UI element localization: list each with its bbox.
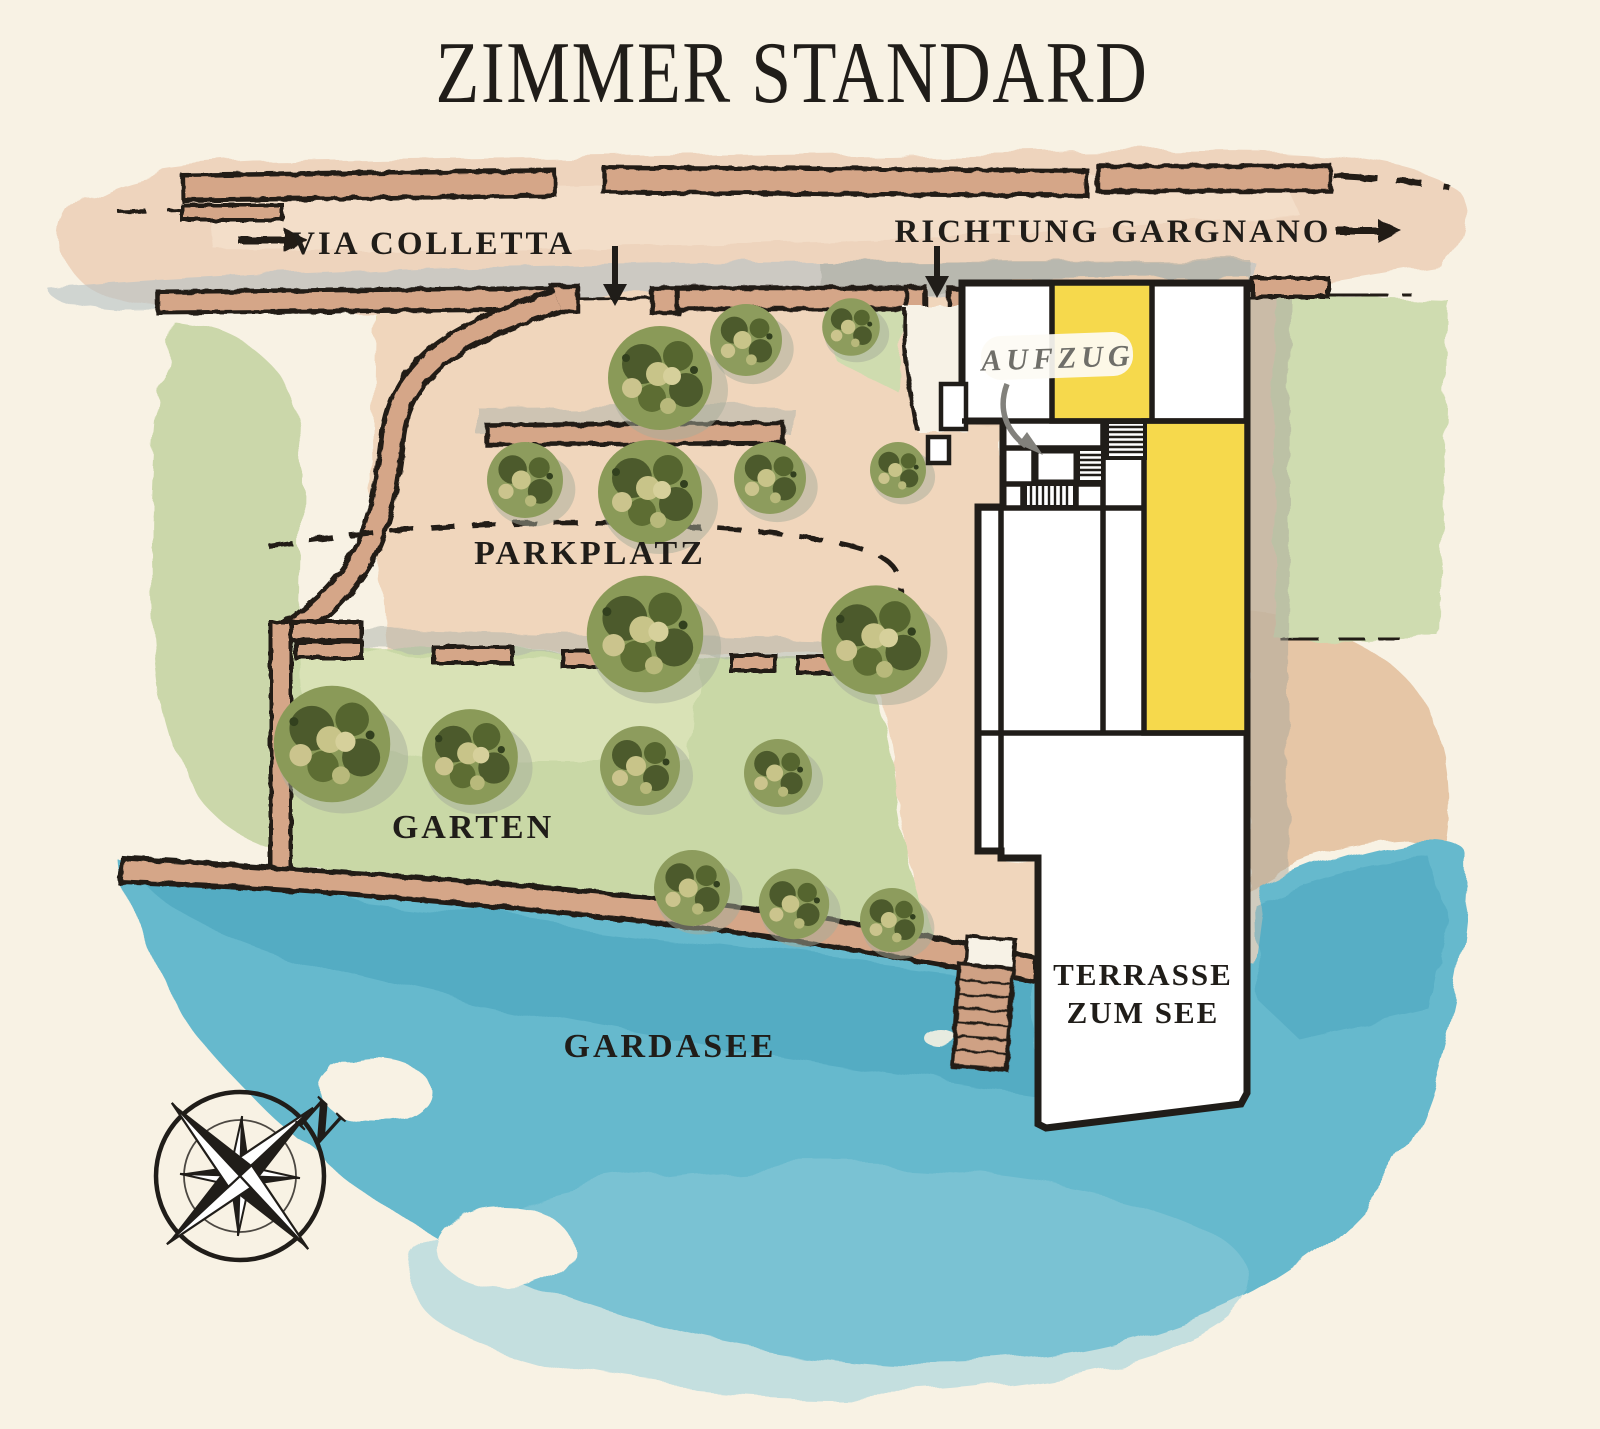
street-label-richtung-gargnano: RICHTUNG GARGNANO — [895, 214, 1332, 250]
standard-room-side — [1144, 421, 1247, 733]
elevator-label: AUFZUG — [979, 339, 1135, 377]
annex-room — [928, 437, 949, 463]
page-title: ZIMMER STANDARD — [436, 25, 1149, 122]
street-label-via-colletta: VIA COLLETTA — [291, 226, 575, 262]
terrace-label-line1: TERRASSE — [1053, 957, 1233, 992]
site-plan-page: ZIMMER STANDARD VIA COLLETTA RICHTUNG GA… — [0, 0, 1600, 1429]
elevator-shaft — [1036, 451, 1076, 482]
area-label-parkplatz: PARKPLATZ — [474, 535, 706, 572]
site-plan-map: ZIMMER STANDARD VIA COLLETTA RICHTUNG GA… — [0, 0, 1600, 1429]
terrace-label-line2: ZUM SEE — [1067, 995, 1220, 1030]
area-label-garten: GARTEN — [392, 809, 554, 846]
area-label-gardasee: GARDASEE — [564, 1028, 777, 1065]
